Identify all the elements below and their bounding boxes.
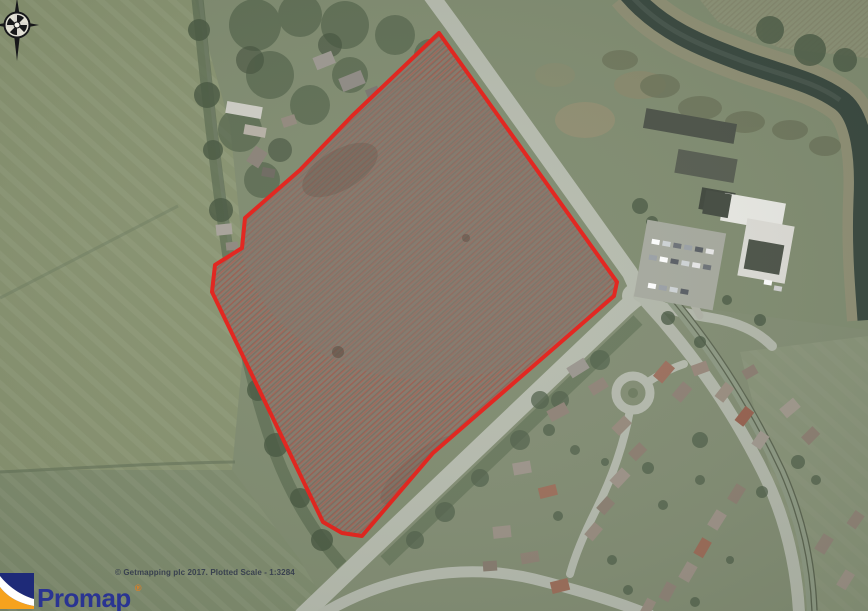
photo-vignette (0, 0, 868, 611)
compass-icon (0, 0, 43, 65)
promap-aerial-plan: © Getmapping plc 2017. Plotted Scale - 1… (0, 0, 868, 611)
promap-logo-mark-icon (0, 573, 34, 609)
promap-logo: Promap ® (0, 573, 141, 609)
promap-wordmark: Promap (37, 588, 131, 609)
registered-mark: ® (135, 583, 142, 593)
copyright-text: © Getmapping plc 2017. Plotted Scale - 1… (115, 568, 295, 577)
aerial-map (0, 0, 868, 611)
